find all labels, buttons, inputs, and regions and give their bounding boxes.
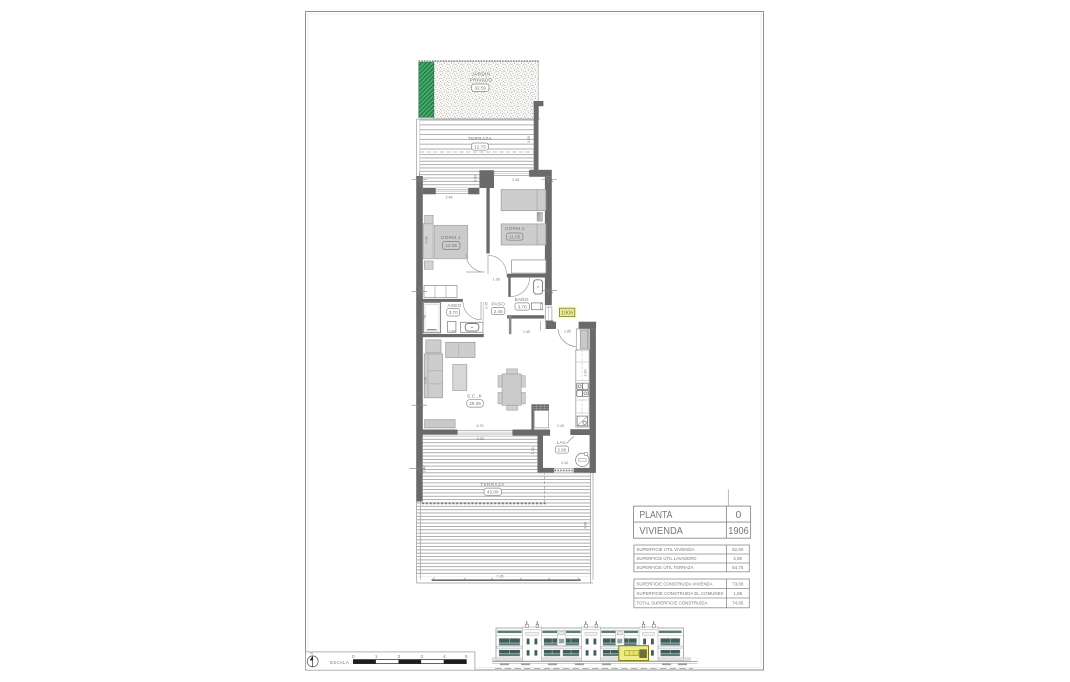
svg-text:62,50: 62,50 [732, 547, 744, 552]
svg-text:3: 3 [420, 654, 423, 659]
svg-text:4.60: 4.60 [584, 522, 588, 529]
svg-text:6.75: 6.75 [477, 424, 484, 428]
svg-text:LAV.: LAV. [557, 440, 567, 445]
svg-text:2.45: 2.45 [449, 330, 456, 334]
svg-text:PRIVADO: PRIVADO [470, 78, 493, 83]
svg-text:5.00: 5.00 [477, 437, 484, 441]
svg-text:1.45: 1.45 [523, 330, 530, 334]
svg-text:7.35: 7.35 [497, 575, 504, 579]
svg-text:0.90: 0.90 [473, 175, 477, 182]
svg-text:3.70: 3.70 [449, 310, 458, 315]
svg-text:BAÑO: BAÑO [515, 296, 529, 302]
svg-text:SUPERFICIE ÚTIL LAVADERO: SUPERFICIE ÚTIL LAVADERO [637, 555, 697, 561]
svg-text:4.08: 4.08 [537, 213, 541, 220]
svg-text:73,00: 73,00 [732, 581, 744, 586]
svg-text:1.08: 1.08 [493, 278, 500, 282]
svg-text:4: 4 [443, 654, 446, 659]
svg-text:TOTAL SUPERFICIE CONSTRUIDA: TOTAL SUPERFICIE CONSTRUIDA [637, 601, 708, 606]
svg-text:2.46: 2.46 [446, 195, 453, 199]
svg-text:DORM.2: DORM.2 [505, 226, 525, 231]
svg-text:TERRAZA: TERRAZA [468, 136, 493, 141]
svg-text:SUPERFICIE ÚTIL TERRAZA: SUPERFICIE ÚTIL TERRAZA [637, 564, 694, 570]
svg-text:54,75: 54,75 [732, 565, 744, 570]
svg-text:1906: 1906 [728, 525, 749, 537]
svg-text:1.85: 1.85 [564, 329, 571, 333]
svg-text:1: 1 [375, 654, 378, 659]
svg-text:3.50: 3.50 [527, 136, 531, 143]
svg-text:S.C.,K: S.C.,K [467, 393, 483, 398]
svg-text:4.08: 4.08 [424, 237, 428, 244]
svg-text:4.00: 4.00 [424, 377, 428, 384]
svg-text:VIVIENDA: VIVIENDA [639, 525, 683, 537]
svg-text:32.59: 32.59 [474, 85, 486, 90]
svg-text:SUPERFICIE ÚTIL VIVIENDA: SUPERFICIE ÚTIL VIVIENDA [637, 546, 695, 552]
svg-text:0: 0 [352, 654, 355, 659]
svg-text:N: N [310, 651, 313, 655]
svg-text:0: 0 [735, 509, 741, 521]
svg-text:PASO: PASO [491, 302, 505, 307]
svg-text:2,90: 2,90 [733, 556, 742, 561]
svg-text:5: 5 [465, 654, 468, 659]
svg-text:2.90: 2.90 [557, 447, 566, 452]
svg-text:2.46: 2.46 [512, 178, 519, 182]
svg-text:12.05: 12.05 [445, 243, 457, 248]
svg-text:12.75: 12.75 [474, 144, 486, 149]
svg-text:3.40: 3.40 [423, 466, 427, 473]
svg-text:ASEO: ASEO [448, 303, 462, 308]
svg-text:42.00: 42.00 [487, 490, 499, 495]
svg-text:74,85: 74,85 [732, 601, 744, 606]
svg-text:ESCALA :: ESCALA : [330, 660, 352, 665]
svg-text:SUPERFICIE CONSTRUIDA EL.COMUN: SUPERFICIE CONSTRUIDA EL.COMUNES [637, 591, 724, 596]
svg-text:2.40: 2.40 [557, 424, 564, 428]
svg-text:SUPERFICIE CONSTRUIDA VIVIENDA: SUPERFICIE CONSTRUIDA VIVIENDA [637, 581, 713, 586]
svg-text:1,85: 1,85 [733, 591, 742, 596]
svg-text:29.35: 29.35 [469, 401, 481, 406]
svg-text:2.10: 2.10 [561, 461, 568, 465]
svg-text:2.45: 2.45 [485, 302, 489, 309]
svg-text:1906: 1906 [561, 311, 573, 317]
svg-text:3.40: 3.40 [583, 370, 587, 377]
svg-text:TERRAZA: TERRAZA [480, 482, 505, 487]
svg-text:2: 2 [398, 654, 401, 659]
svg-text:3.70: 3.70 [518, 304, 527, 309]
svg-text:2.45: 2.45 [494, 309, 503, 314]
svg-text:11.05: 11.05 [509, 234, 521, 239]
svg-text:DORM.1: DORM.1 [441, 235, 461, 240]
svg-text:JARDÍN: JARDÍN [472, 71, 491, 77]
svg-text:PLANTA: PLANTA [639, 509, 672, 521]
svg-text:1.43: 1.43 [531, 447, 535, 454]
